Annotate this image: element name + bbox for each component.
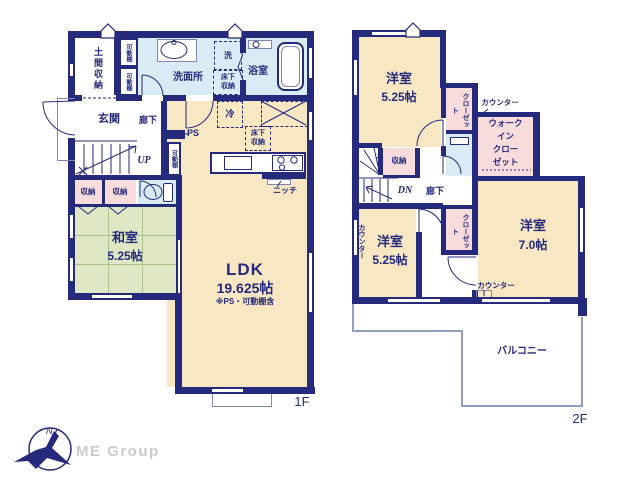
fixture-details-1f <box>144 41 306 200</box>
floorplan-canvas: 可動棚 可動棚 可動棚 洗 床下 収納 冷 床下 収納 土間収納 洗面所 浴室 … <box>0 0 640 480</box>
door-arcs-1f <box>43 54 243 214</box>
balcony-outline <box>353 304 582 406</box>
stairs-1f <box>75 141 137 175</box>
north-label: N <box>46 426 53 436</box>
stairs-2f <box>357 148 398 202</box>
plan-linework: N <box>0 0 640 480</box>
compass-icon: N <box>14 426 71 470</box>
door-arcs-2f <box>353 109 531 296</box>
vent-markers <box>101 23 420 38</box>
